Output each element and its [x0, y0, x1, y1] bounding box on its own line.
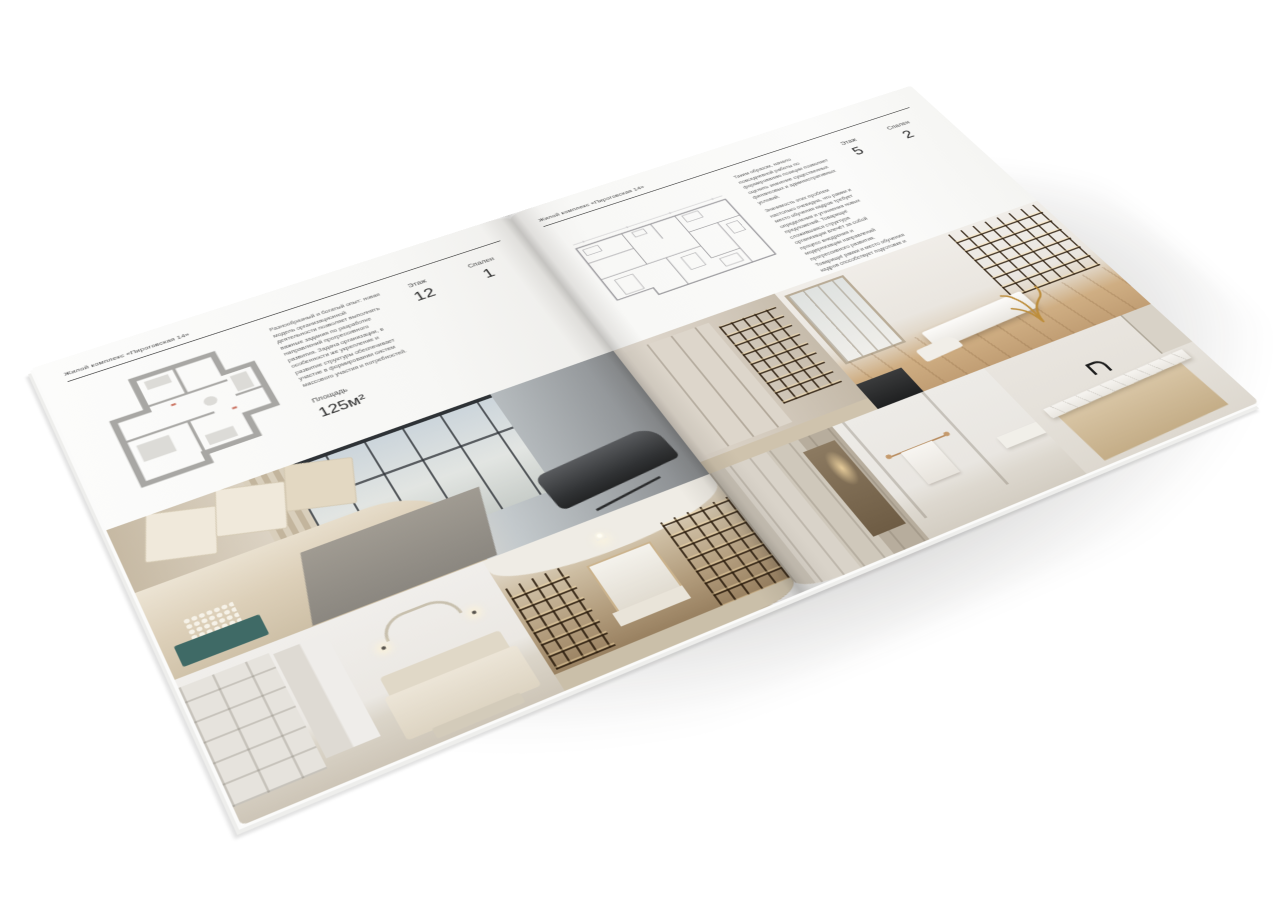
left-floor-stat: Этаж 12	[385, 271, 459, 311]
left-bedrooms-stat: Спален 1	[450, 250, 523, 289]
pillow	[215, 481, 288, 537]
right-bedrooms-stat: Спален 2	[873, 116, 936, 148]
pillow	[284, 457, 357, 512]
arch-decor	[375, 593, 462, 642]
right-floor-stat: Этаж 5	[823, 132, 887, 165]
pillow	[144, 506, 217, 563]
wall-sconce	[472, 610, 478, 615]
magazine-scene: Жилой комплекс «Пироговская 14»	[32, 86, 1259, 826]
wall-sconce	[381, 646, 387, 651]
